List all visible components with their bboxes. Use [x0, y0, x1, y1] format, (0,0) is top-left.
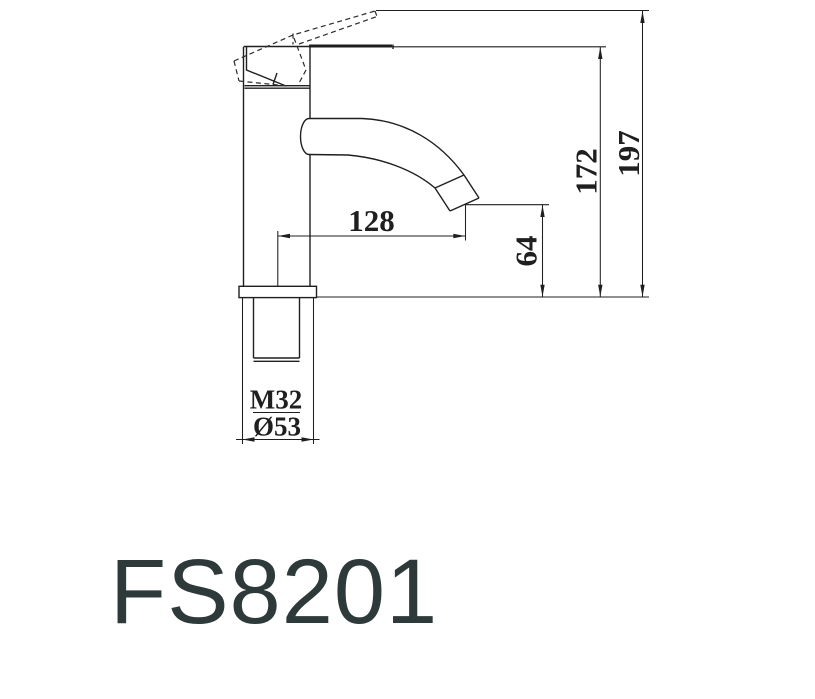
faucet-technical-drawing: 128 64 172 197 M32 [0, 0, 815, 699]
faucet-handle [244, 45, 394, 87]
base-plate [239, 286, 317, 297]
model-number: FS8201 [110, 541, 438, 643]
dimension-outlet-height: 64 [466, 205, 550, 297]
dimension-body-height: 172 [393, 47, 606, 297]
dimension-spout-reach: 128 [278, 203, 466, 286]
technical-drawing-page: 128 64 172 197 M32 [0, 0, 815, 699]
faucet-spout [301, 119, 479, 212]
raised-handle-dashed [234, 11, 377, 86]
dimension-base-diameter: Ø53 [236, 412, 320, 442]
dim-label-d53: Ø53 [253, 412, 301, 442]
spout-aerator [435, 175, 479, 211]
dim-label-172: 172 [569, 148, 604, 195]
dimension-thread: M32 [250, 385, 302, 415]
dim-label-64: 64 [509, 236, 544, 267]
dim-label-128: 128 [348, 203, 395, 238]
dim-label-m32: M32 [250, 385, 302, 415]
dim-label-197: 197 [611, 130, 646, 177]
